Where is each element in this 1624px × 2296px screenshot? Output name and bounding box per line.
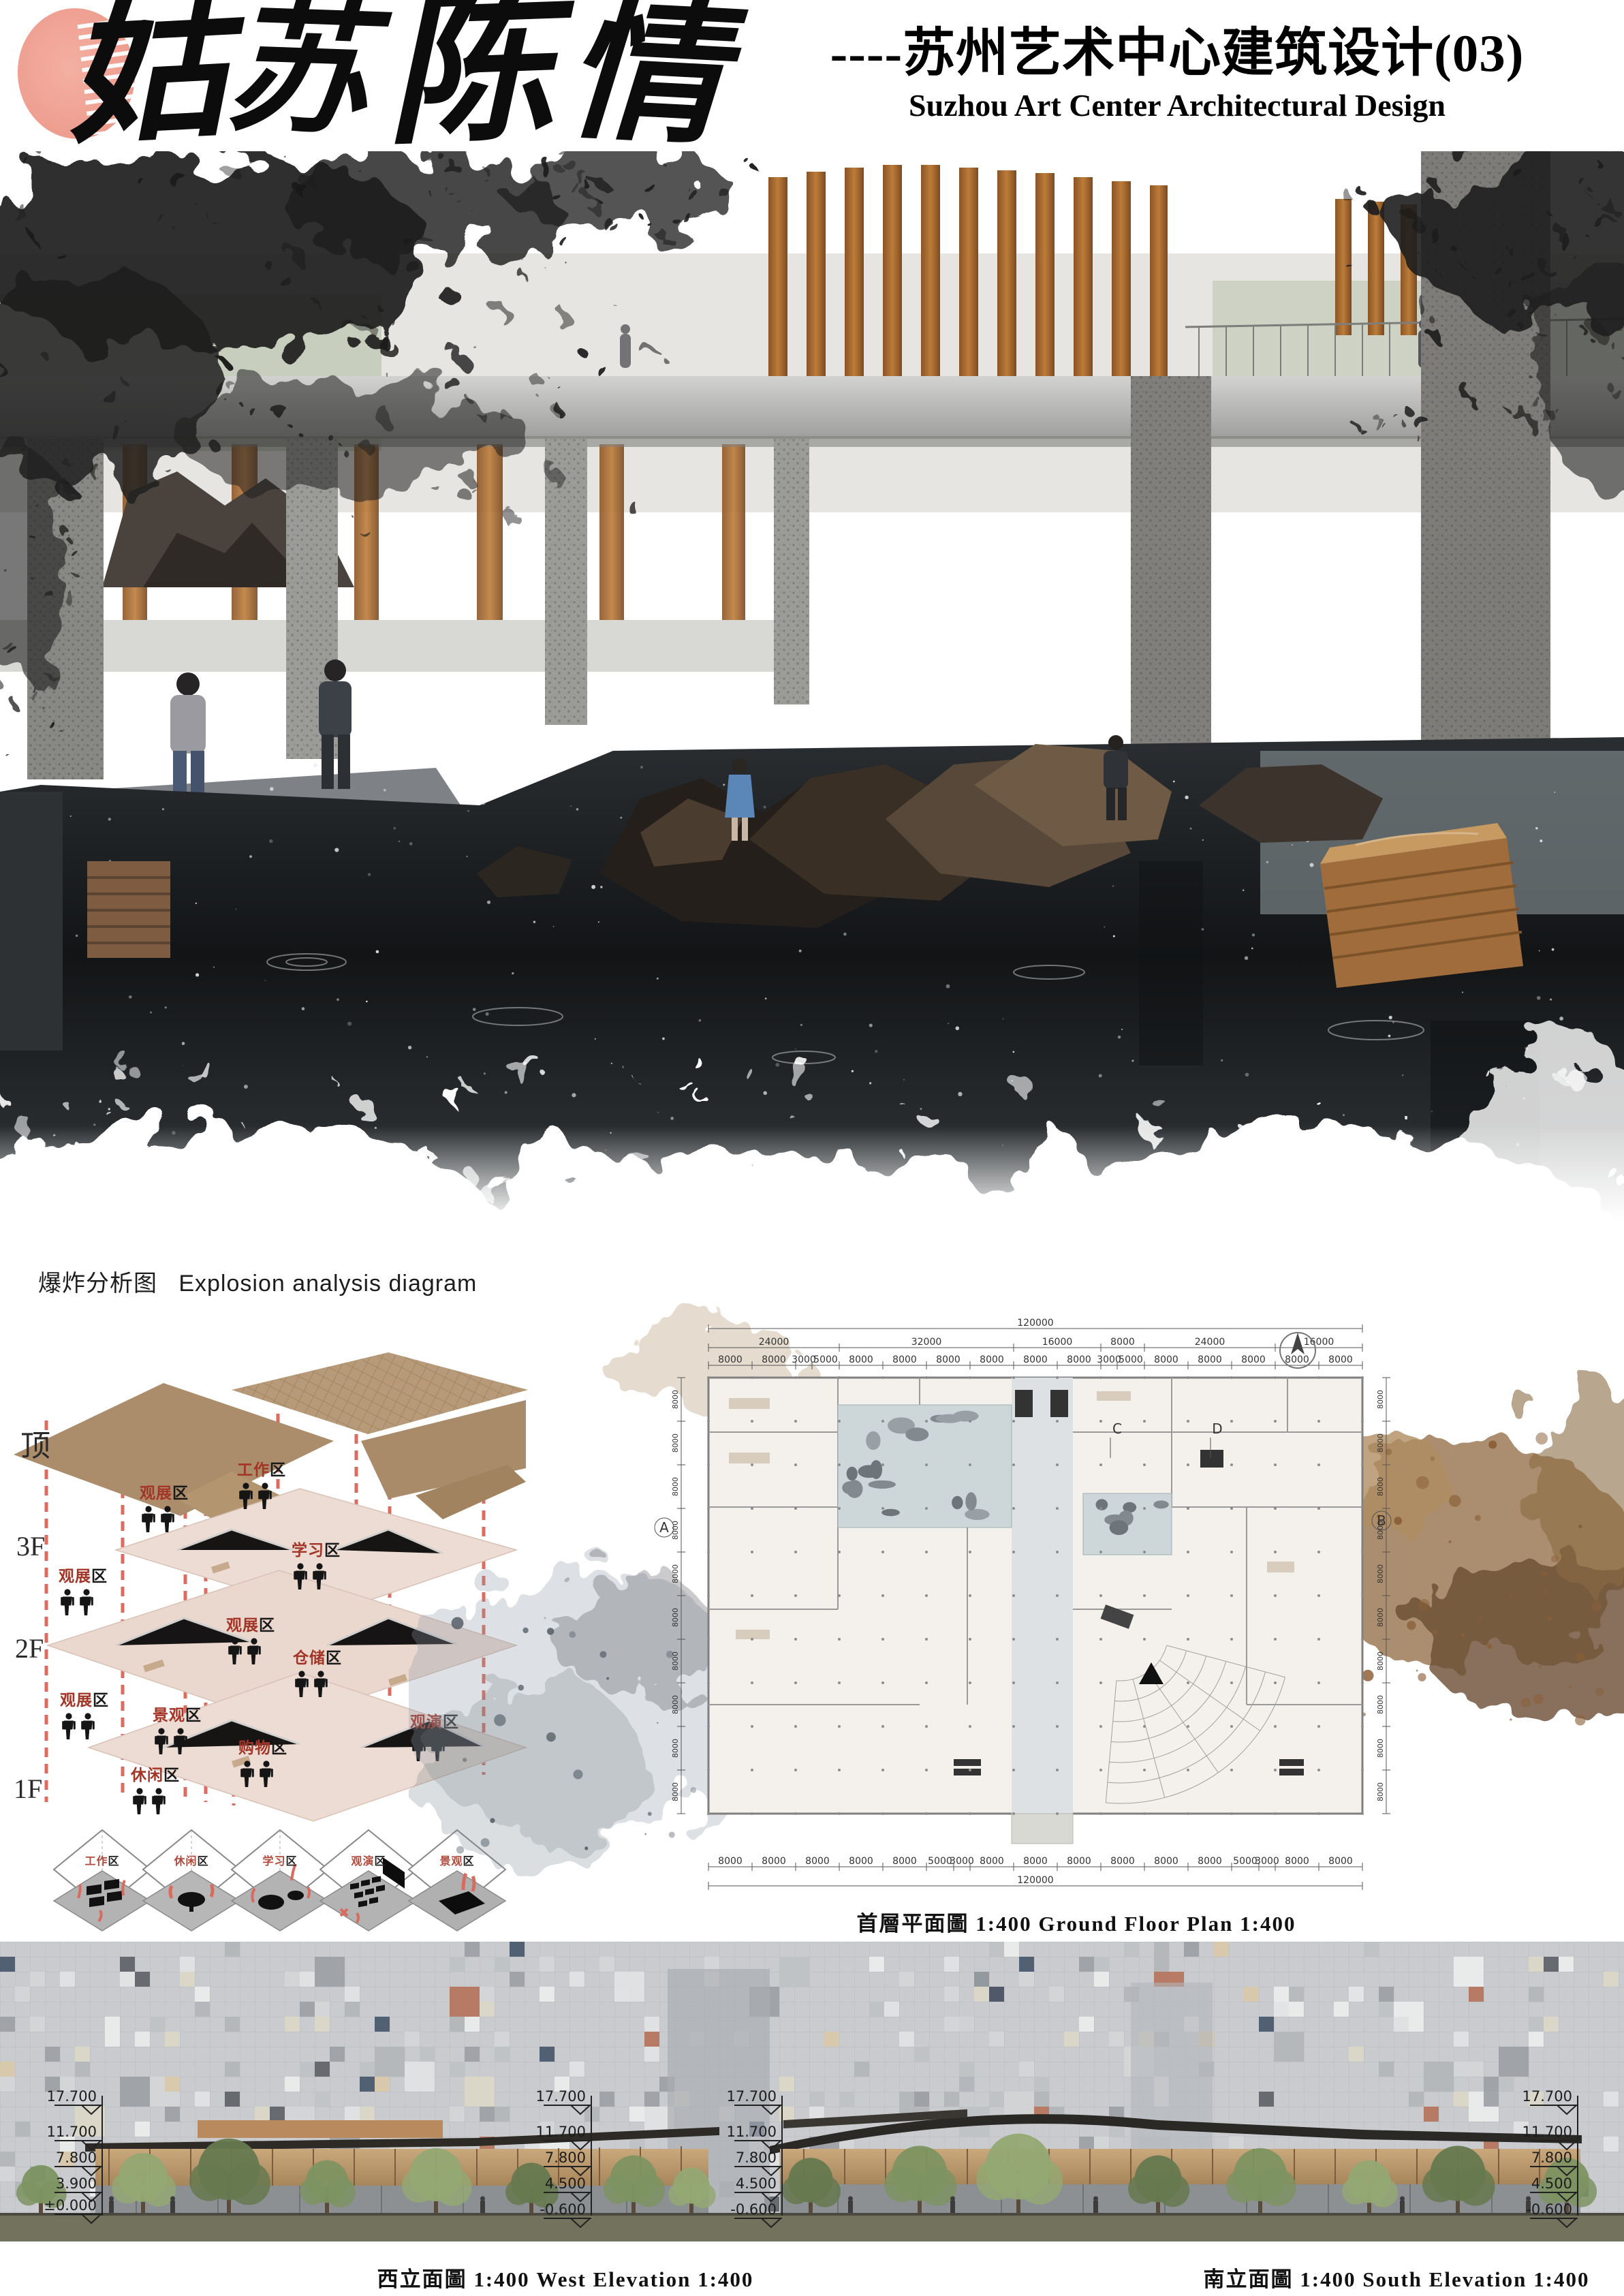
calligraphy-char-4: 情 (563, 0, 728, 154)
svg-text:-0.600: -0.600 (1526, 2201, 1572, 2218)
svg-text:17.700: 17.700 (727, 2088, 777, 2105)
calligraphy-char-3: 陈 (383, 0, 556, 154)
plan-caption: 首層平面圖 1:400 Ground Floor Plan 1:400 (838, 1906, 1315, 1937)
people-pair-icon (226, 1636, 263, 1666)
calligraphy-char-2: 苏 (222, 0, 371, 143)
cube-drawing (51, 1827, 153, 1943)
cube-drawing (229, 1827, 331, 1943)
zone-label: 观展区 (60, 1687, 109, 1741)
water-channel (0, 792, 63, 1051)
zone-label: 观展区 (59, 1563, 108, 1617)
svg-text:-0.600: -0.600 (540, 2201, 586, 2218)
floor-label-3f: 3F (16, 1530, 45, 1562)
svg-text:8000: 8000 (1376, 1782, 1385, 1801)
ground-strip (0, 2216, 1624, 2241)
cube-label: 观演区 (317, 1852, 420, 1868)
zone-label: 学习区 (292, 1537, 341, 1592)
explosion-title-cn: 爆炸分析图 (38, 1271, 157, 1297)
svg-text:8000: 8000 (671, 1433, 680, 1453)
floor-label-2f: 2F (15, 1632, 44, 1664)
svg-text:5000: 5000 (928, 1856, 952, 1867)
svg-text:8000: 8000 (1376, 1695, 1385, 1714)
svg-text:8000: 8000 (1376, 1390, 1385, 1409)
interior-rendering (0, 151, 1624, 1222)
svg-text:8000: 8000 (1110, 1856, 1135, 1867)
people-pair-icon (60, 1711, 97, 1741)
cube-drawing (140, 1827, 243, 1943)
svg-text:7.800: 7.800 (1531, 2150, 1572, 2166)
svg-text:8000: 8000 (936, 1354, 961, 1365)
svg-text:8000: 8000 (980, 1354, 1004, 1365)
svg-text:8000: 8000 (1376, 1608, 1385, 1627)
zone-label: 购物区 (238, 1735, 287, 1789)
svg-text:5000: 5000 (1233, 1856, 1258, 1867)
svg-text:8000: 8000 (671, 1651, 680, 1671)
svg-text:8000: 8000 (718, 1354, 743, 1365)
south-elevation-caption: 南立面圖 1:400 South Elevation 1:400 (1192, 2262, 1601, 2293)
cube-label: 工作区 (51, 1852, 153, 1868)
project-title-cn: ----苏州艺术中心建筑设计(03) (734, 11, 1620, 87)
svg-text:8000: 8000 (1241, 1354, 1266, 1365)
svg-text:8000: 8000 (671, 1739, 680, 1758)
svg-text:5000: 5000 (1119, 1354, 1143, 1365)
zone-label: 景观区 (153, 1702, 202, 1756)
svg-text:8000: 8000 (671, 1608, 680, 1627)
svg-text:17.700: 17.700 (536, 2088, 586, 2105)
svg-text:3.900: 3.900 (56, 2175, 97, 2192)
svg-text:8000: 8000 (1376, 1651, 1385, 1671)
svg-text:120000: 120000 (1017, 1318, 1053, 1329)
svg-text:8000: 8000 (1154, 1856, 1178, 1867)
svg-text:11.700: 11.700 (536, 2124, 586, 2140)
svg-text:11.700: 11.700 (47, 2124, 97, 2140)
svg-text:8000: 8000 (1376, 1477, 1385, 1496)
function-cube-study: 学习区 (229, 1827, 331, 1943)
svg-text:8000: 8000 (1023, 1856, 1048, 1867)
svg-text:4.500: 4.500 (1531, 2175, 1572, 2192)
svg-text:B: B (1377, 1512, 1386, 1529)
svg-text:8000: 8000 (671, 1521, 680, 1540)
zone-label: 仓储区 (293, 1645, 342, 1699)
cube-label: 休闲区 (140, 1852, 243, 1868)
svg-text:8000: 8000 (1328, 1354, 1353, 1365)
svg-text:8000: 8000 (762, 1856, 786, 1867)
people-pair-icon (238, 1759, 275, 1789)
presentation-board: 姑 苏 陈 情 ----苏州艺术中心建筑设计(03) Suzhou Art Ce… (0, 0, 1624, 2296)
svg-text:8000: 8000 (805, 1856, 830, 1867)
svg-text:4.500: 4.500 (736, 2175, 777, 2192)
svg-text:8000: 8000 (1285, 1856, 1309, 1867)
svg-text:8000: 8000 (1067, 1856, 1091, 1867)
svg-text:16000: 16000 (1304, 1337, 1334, 1348)
calligraphy-char-1: 姑 (61, 0, 230, 153)
svg-text:4.500: 4.500 (545, 2175, 586, 2192)
svg-text:32000: 32000 (911, 1337, 942, 1348)
svg-text:8000: 8000 (849, 1856, 873, 1867)
svg-text:8000: 8000 (671, 1564, 680, 1583)
svg-text:D: D (1212, 1421, 1222, 1437)
svg-text:11.700: 11.700 (727, 2124, 777, 2140)
svg-text:8000: 8000 (849, 1354, 873, 1365)
floor-label-roof: 顶 (20, 1421, 50, 1465)
west-elevation-caption: 西立面圖 1:400 West Elevation 1:400 (361, 2262, 770, 2293)
people-pair-icon (140, 1504, 176, 1534)
plan-central-corridor (1012, 1378, 1073, 1814)
svg-text:8000: 8000 (671, 1390, 680, 1409)
svg-text:7.800: 7.800 (56, 2150, 97, 2166)
svg-text:8000: 8000 (1198, 1856, 1222, 1867)
svg-text:8000: 8000 (1023, 1354, 1048, 1365)
wood-box-right (1320, 823, 1523, 988)
svg-text:8000: 8000 (1067, 1354, 1091, 1365)
plan-entrance-walk (1012, 1814, 1073, 1844)
ground-floor-plan: 1200002400032000160008000240001600080008… (634, 1289, 1478, 1909)
zone-label: 观展区 (140, 1480, 189, 1534)
reflection-1 (1139, 861, 1203, 1066)
function-cube-work: 工作区 (51, 1827, 153, 1943)
svg-text:8000: 8000 (892, 1856, 917, 1867)
svg-text:8000: 8000 (1110, 1337, 1135, 1348)
svg-text:8000: 8000 (892, 1354, 917, 1365)
svg-text:120000: 120000 (1017, 1875, 1053, 1886)
ground-line (0, 2213, 1624, 2216)
svg-text:8000: 8000 (1198, 1354, 1222, 1365)
function-cube-theater: 观演区 (317, 1827, 420, 1943)
svg-text:7.800: 7.800 (545, 2150, 586, 2166)
people-pair-icon (131, 1786, 168, 1816)
svg-text:A: A (659, 1519, 669, 1536)
svg-text:8000: 8000 (1154, 1354, 1178, 1365)
svg-text:8000: 8000 (1376, 1433, 1385, 1453)
floor-label-1f: 1F (14, 1773, 42, 1805)
wood-box-left (87, 861, 170, 958)
svg-text:C: C (1112, 1421, 1122, 1437)
zone-label: 观展区 (226, 1612, 275, 1666)
svg-text:8000: 8000 (1376, 1564, 1385, 1583)
people-pair-icon (293, 1669, 330, 1699)
svg-text:24000: 24000 (1195, 1337, 1225, 1348)
rear-walkway (0, 620, 804, 672)
svg-text:8000: 8000 (980, 1856, 1004, 1867)
people-pair-icon (237, 1481, 274, 1511)
svg-text:±0.000: ±0.000 (44, 2197, 97, 2214)
svg-text:17.700: 17.700 (47, 2088, 97, 2105)
svg-text:8000: 8000 (718, 1856, 743, 1867)
svg-text:11.700: 11.700 (1522, 2124, 1572, 2140)
svg-text:7.800: 7.800 (736, 2150, 777, 2166)
svg-text:16000: 16000 (1042, 1337, 1073, 1348)
elevations-band: 17.70011.7007.8003.900±0.00017.70011.700… (0, 1942, 1624, 2256)
zone-label: 休闲区 (131, 1762, 180, 1816)
svg-text:8000: 8000 (671, 1782, 680, 1801)
svg-text:8000: 8000 (1376, 1739, 1385, 1758)
svg-text:-0.600: -0.600 (730, 2201, 777, 2218)
svg-text:17.700: 17.700 (1522, 2088, 1572, 2105)
svg-text:8000: 8000 (1285, 1354, 1309, 1365)
svg-text:8000: 8000 (1328, 1856, 1353, 1867)
svg-text:8000: 8000 (671, 1477, 680, 1496)
function-cube-leisure: 休闲区 (140, 1827, 243, 1943)
people-pair-icon (59, 1587, 95, 1617)
svg-text:24000: 24000 (759, 1337, 790, 1348)
svg-text:5000: 5000 (813, 1354, 838, 1365)
zone-label: 工作区 (237, 1457, 286, 1511)
svg-text:8000: 8000 (762, 1354, 786, 1365)
people-pair-icon (153, 1726, 189, 1756)
project-title-en: Suzhou Art Center Architectural Design (734, 87, 1620, 123)
cube-label: 学习区 (229, 1852, 331, 1868)
svg-text:8000: 8000 (671, 1695, 680, 1714)
people-pair-icon (292, 1562, 328, 1592)
cube-drawing (317, 1827, 420, 1943)
